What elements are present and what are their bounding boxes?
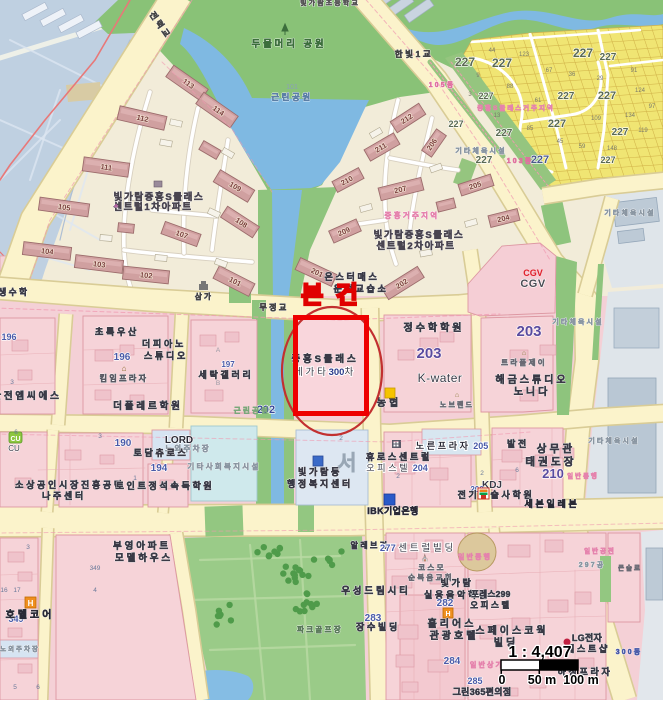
svg-text:LG전자: LG전자 <box>572 632 603 643</box>
svg-text:빛가람동: 빛가람동 <box>298 466 342 477</box>
svg-text:227: 227 <box>573 46 593 60</box>
svg-text:4: 4 <box>93 587 97 594</box>
svg-text:기타사회복지시설: 기타사회복지시설 <box>187 461 260 471</box>
svg-text:194: 194 <box>151 463 168 474</box>
svg-text:3: 3 <box>26 544 30 551</box>
svg-text:메가타300차: 메가타300차 <box>294 366 356 378</box>
svg-text:킴임프라자: 킴임프라자 <box>100 373 149 383</box>
svg-text:101: 101 <box>286 84 298 91</box>
svg-text:105: 105 <box>58 202 72 213</box>
svg-text:근린공원: 근린공원 <box>234 405 271 415</box>
svg-text:13: 13 <box>494 113 501 119</box>
svg-text:정수학학원: 정수학학원 <box>404 321 465 334</box>
svg-text:6: 6 <box>36 684 40 691</box>
svg-text:호텔코어: 호텔코어 <box>6 608 55 621</box>
svg-text:한빛1교: 한빛1교 <box>395 49 433 59</box>
svg-text:134: 134 <box>625 113 636 119</box>
svg-text:장수빌딩: 장수빌딩 <box>356 621 400 632</box>
svg-text:109: 109 <box>591 116 602 122</box>
svg-text:A: A <box>216 347 221 354</box>
svg-text:124: 124 <box>635 88 646 94</box>
svg-text:1 : 4,407: 1 : 4,407 <box>508 644 571 661</box>
svg-text:⌂: ⌂ <box>455 392 459 399</box>
svg-text:노브랜드: 노브랜드 <box>440 400 474 409</box>
svg-text:기타체육시설: 기타체육시설 <box>552 317 603 326</box>
svg-text:코스모: 코스모 <box>418 563 445 572</box>
svg-text:36: 36 <box>569 72 576 78</box>
svg-text:K-water: K-water <box>418 371 463 385</box>
svg-text:한전엠씨에스: 한전엠씨에스 <box>0 390 62 402</box>
svg-text:기타체육시설: 기타체육시설 <box>604 208 655 217</box>
svg-text:0: 0 <box>499 673 506 687</box>
svg-text:행정복지센터: 행정복지센터 <box>287 478 353 489</box>
svg-text:B: B <box>216 380 220 387</box>
svg-text:빛가람초등학교: 빛가람초등학교 <box>300 0 360 7</box>
svg-text:노니다: 노니다 <box>514 385 551 398</box>
svg-text:토인트정석속독학원: 토인트정석속독학원 <box>116 480 215 491</box>
svg-text:스페이스코웍: 스페이스코웍 <box>475 624 548 637</box>
svg-text:센트럴2차아파트: 센트럴2차아파트 <box>376 240 455 252</box>
svg-text:빛가람: 빛가람 <box>441 577 474 588</box>
svg-text:초록우산: 초록우산 <box>95 326 139 337</box>
svg-text:포레스299: 포레스299 <box>471 589 510 599</box>
svg-text:일반통행: 일반통행 <box>567 471 599 480</box>
svg-text:노외주차장: 노외주차장 <box>0 644 40 653</box>
svg-text:기타체육시설: 기타체육시설 <box>455 146 506 155</box>
svg-text:85: 85 <box>527 126 534 132</box>
svg-text:119: 119 <box>638 128 648 134</box>
svg-text:큰슬로: 큰슬로 <box>618 563 642 572</box>
svg-text:104: 104 <box>41 246 55 257</box>
svg-text:105동: 105동 <box>429 81 456 89</box>
svg-text:111: 111 <box>100 162 113 173</box>
svg-text:⌂: ⌂ <box>122 364 127 373</box>
svg-text:50 m: 50 m <box>528 673 557 687</box>
svg-text:2: 2 <box>480 470 484 477</box>
svg-text:모델하우스: 모델하우스 <box>115 552 173 564</box>
svg-text:6: 6 <box>515 467 519 474</box>
svg-text:227: 227 <box>492 56 512 70</box>
svg-text:123: 123 <box>519 52 530 58</box>
svg-text:CGV: CGV <box>520 278 546 290</box>
svg-text:282: 282 <box>437 598 454 609</box>
svg-text:⌂: ⌂ <box>522 350 526 357</box>
svg-text:203: 203 <box>416 345 441 362</box>
svg-text:227: 227 <box>558 91 575 102</box>
svg-text:중흥S클래스: 중흥S클래스 <box>291 353 358 365</box>
svg-text:29: 29 <box>597 76 604 82</box>
svg-text:H: H <box>28 599 34 608</box>
svg-text:45: 45 <box>557 139 564 145</box>
svg-text:소상공인시장진흥공단: 소상공인시장진흥공단 <box>15 479 125 490</box>
svg-text:227: 227 <box>455 55 475 69</box>
svg-text:3: 3 <box>98 433 102 440</box>
svg-text:일반공전: 일반공전 <box>584 546 616 555</box>
svg-text:5: 5 <box>13 684 17 691</box>
svg-text:203: 203 <box>516 323 541 340</box>
svg-text:227: 227 <box>496 128 513 139</box>
svg-text:그린365편의점: 그린365편의점 <box>453 686 512 697</box>
svg-text:67: 67 <box>546 68 553 74</box>
svg-text:196: 196 <box>114 352 131 363</box>
svg-text:휴로스센트럴: 휴로스센트럴 <box>366 451 432 462</box>
svg-text:토담츄로스: 토담츄로스 <box>134 447 189 458</box>
svg-text:⛪: ⛪ <box>421 553 430 562</box>
svg-text:해금스튜디오: 해금스튜디오 <box>495 373 568 386</box>
svg-text:300동: 300동 <box>616 648 643 656</box>
svg-text:H: H <box>445 611 450 618</box>
svg-text:중흥S클래스거주지역: 중흥S클래스거주지역 <box>477 103 555 112</box>
svg-text:210: 210 <box>542 466 564 481</box>
svg-text:근린공원: 근린공원 <box>271 92 312 102</box>
svg-text:CU: CU <box>8 444 20 453</box>
svg-text:197: 197 <box>221 360 235 369</box>
svg-text:227: 227 <box>476 155 493 166</box>
svg-text:일반통행: 일반통행 <box>458 552 492 561</box>
svg-text:227: 227 <box>600 52 617 63</box>
svg-text:2: 2 <box>396 473 400 480</box>
svg-text:227: 227 <box>600 155 615 165</box>
svg-text:상무관: 상무관 <box>537 442 575 455</box>
svg-text:CU: CU <box>10 436 20 443</box>
svg-text:파크골프장: 파크골프장 <box>297 624 343 634</box>
svg-text:100 m: 100 m <box>563 673 598 687</box>
svg-text:103동: 103동 <box>507 157 534 165</box>
svg-text:227: 227 <box>478 91 493 101</box>
svg-text:297공: 297공 <box>579 561 606 569</box>
svg-text:227: 227 <box>448 119 463 129</box>
svg-text:삼가: 삼가 <box>195 291 213 301</box>
svg-text:센트럴1차아파트: 센트럴1차아파트 <box>113 201 192 213</box>
svg-text:284: 284 <box>444 656 461 667</box>
svg-text:더피아노: 더피아노 <box>142 338 186 349</box>
svg-text:227: 227 <box>612 127 629 138</box>
svg-text:생수학: 생수학 <box>0 287 30 297</box>
svg-text:285: 285 <box>467 676 482 686</box>
svg-text:세탁갤러리: 세탁갤러리 <box>199 369 254 380</box>
svg-text:세븐일레븐: 세븐일레븐 <box>525 498 580 509</box>
svg-text:일반상가: 일반상가 <box>470 660 504 669</box>
svg-text:148: 148 <box>607 146 618 152</box>
svg-text:나주센터: 나주센터 <box>42 490 86 501</box>
svg-text:두물머리 공원: 두물머리 공원 <box>251 38 326 50</box>
svg-text:CGV: CGV <box>523 268 543 278</box>
svg-text:더플레르학원: 더플레르학원 <box>113 400 183 412</box>
svg-text:노른프라자 205: 노른프라자 205 <box>416 440 488 451</box>
svg-text:44: 44 <box>489 48 496 54</box>
svg-text:61: 61 <box>535 98 542 104</box>
svg-text:91: 91 <box>631 68 638 74</box>
svg-text:97: 97 <box>649 104 656 110</box>
svg-text:온스터매스: 온스터매스 <box>325 271 380 282</box>
svg-text:무정교: 무정교 <box>259 302 288 312</box>
svg-text:발전: 발전 <box>507 438 529 449</box>
svg-text:관광호텔: 관광호텔 <box>430 629 479 642</box>
svg-text:3: 3 <box>10 379 14 386</box>
svg-text:베스트샵: 베스트샵 <box>566 643 610 654</box>
svg-text:277 센트럴빌딩: 277 센트럴빌딩 <box>380 543 456 554</box>
svg-text:6: 6 <box>14 429 18 436</box>
svg-text:본 건: 본 건 <box>301 282 361 309</box>
svg-text:227: 227 <box>598 90 616 102</box>
svg-text:♣: ♣ <box>114 203 119 210</box>
svg-text:오피스텔 204: 오피스텔 204 <box>366 462 427 473</box>
svg-text:2: 2 <box>339 435 343 442</box>
svg-text:59: 59 <box>579 144 586 150</box>
svg-text:오피스텔: 오피스텔 <box>470 600 511 610</box>
svg-text:기타체육시설: 기타체육시설 <box>588 436 639 445</box>
svg-text:전기기술사학원: 전기기술사학원 <box>458 489 535 500</box>
svg-text:102: 102 <box>140 270 153 280</box>
svg-text:190: 190 <box>115 438 132 449</box>
svg-text:우성드림시티: 우성드림시티 <box>341 585 411 597</box>
svg-text:부영아파트: 부영아파트 <box>113 540 171 552</box>
svg-text:227: 227 <box>548 118 566 130</box>
svg-text:349: 349 <box>90 565 101 572</box>
svg-text:103: 103 <box>93 259 107 269</box>
svg-text:홀리어스: 홀리어스 <box>428 617 477 630</box>
svg-text:1: 1 <box>133 475 137 482</box>
svg-text:트라플제이: 트라플제이 <box>501 357 547 367</box>
svg-text:중흥거주지역: 중흥거주지역 <box>385 210 440 220</box>
svg-text:88: 88 <box>507 84 514 90</box>
svg-text:IBK기업은행: IBK기업은행 <box>367 505 418 516</box>
svg-text:196: 196 <box>1 332 16 342</box>
svg-text:빛가람중흥S클래스: 빛가람중흥S클래스 <box>374 229 465 241</box>
svg-text:스튜디오: 스튜디오 <box>144 350 188 361</box>
svg-text:16: 16 <box>0 587 8 594</box>
svg-text:227: 227 <box>531 154 549 166</box>
svg-text:17: 17 <box>13 587 21 594</box>
